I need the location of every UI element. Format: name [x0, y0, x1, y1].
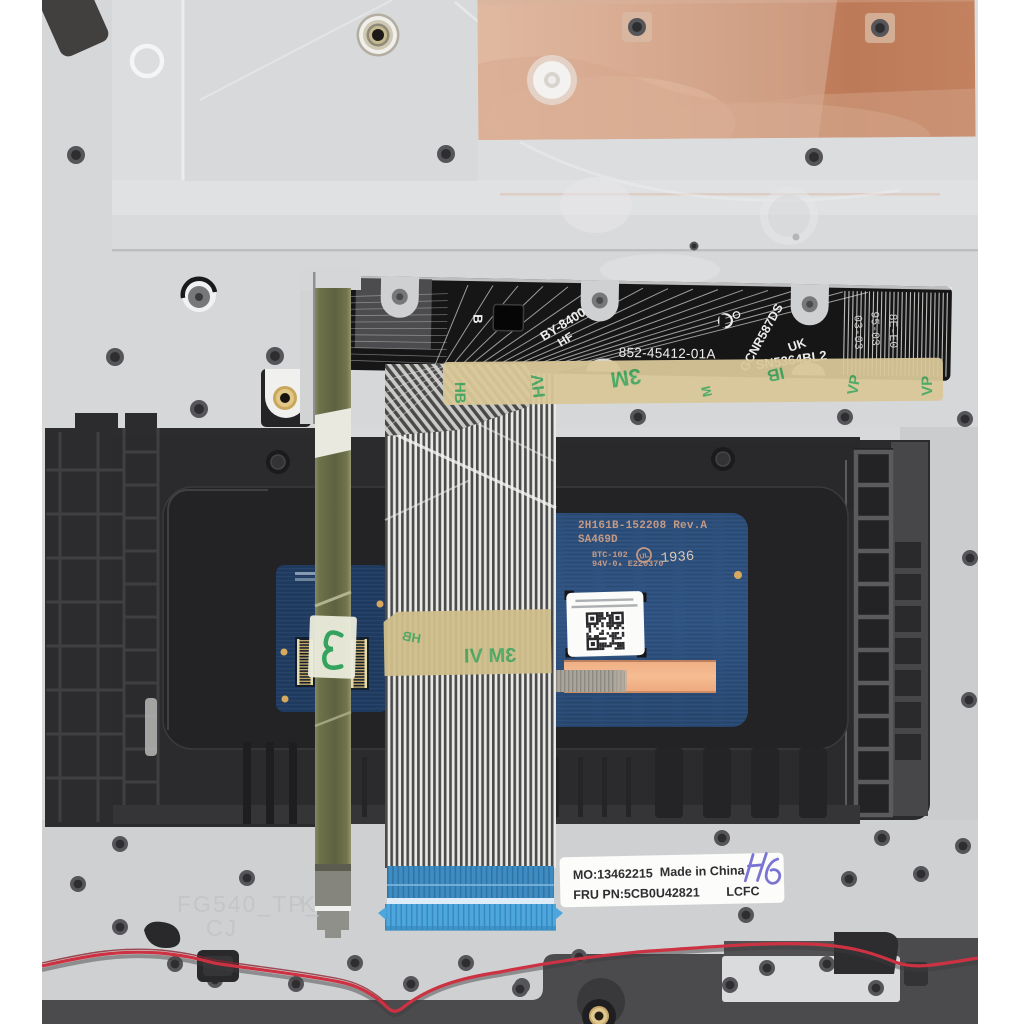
svg-text:LCFC: LCFC — [726, 884, 760, 899]
svg-text:K: K — [300, 891, 317, 917]
svg-text:HV: HV — [527, 373, 549, 399]
svg-text:FRU PN:5CB0U42821: FRU PN:5CB0U42821 — [573, 885, 700, 902]
svg-text:VP: VP — [919, 376, 936, 396]
svg-text:CJ: CJ — [206, 915, 238, 941]
svg-text:VP: VP — [844, 374, 864, 397]
svg-text:94V-0▴ E220370: 94V-0▴ E220370 — [592, 559, 663, 569]
svg-text:8E-E0: 8E-E0 — [886, 314, 900, 349]
svg-text:3M VI: 3M VI — [464, 645, 517, 668]
svg-text:SA469D: SA469D — [578, 534, 618, 546]
svg-text:1936: 1936 — [660, 549, 695, 567]
svg-text:MO:13462215: MO:13462215 — [573, 866, 653, 882]
svg-text:95-03: 95-03 — [868, 311, 882, 346]
svg-text:2H161B-152208 Rev.A: 2H161B-152208 Rev.A — [578, 520, 707, 532]
svg-text:HB: HB — [451, 382, 468, 404]
svg-text:B: B — [470, 314, 485, 324]
svg-text:Made in China: Made in China — [660, 863, 746, 879]
svg-text:03-03: 03-03 — [850, 315, 864, 350]
svg-text:FG540_TP_: FG540_TP_ — [177, 891, 320, 917]
svg-text:852-45412-01A: 852-45412-01A — [619, 345, 716, 362]
svg-text:3M: 3M — [609, 363, 643, 392]
